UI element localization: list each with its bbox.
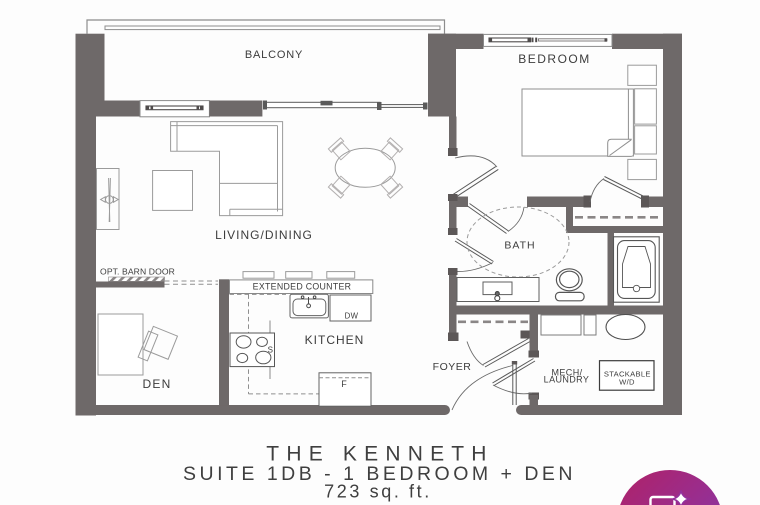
svg-text:DEN: DEN bbox=[143, 377, 172, 391]
svg-text:S: S bbox=[268, 345, 273, 354]
svg-text:BATH: BATH bbox=[504, 240, 535, 252]
svg-text:EXTENDED COUNTER: EXTENDED COUNTER bbox=[253, 281, 352, 291]
svg-text:DW: DW bbox=[345, 312, 359, 321]
svg-text:KITCHEN: KITCHEN bbox=[305, 333, 365, 347]
svg-text:BALCONY: BALCONY bbox=[245, 49, 303, 61]
svg-text:LIVING/DINING: LIVING/DINING bbox=[215, 228, 313, 242]
svg-text:LAUNDRY: LAUNDRY bbox=[544, 375, 590, 385]
svg-text:OPT. BARN DOOR: OPT. BARN DOOR bbox=[100, 266, 175, 276]
svg-text:W/D: W/D bbox=[619, 378, 635, 387]
svg-text:FOYER: FOYER bbox=[433, 361, 472, 373]
svg-text:723 sq. ft.: 723 sq. ft. bbox=[324, 482, 432, 502]
svg-text:F: F bbox=[341, 379, 347, 389]
svg-text:BEDROOM: BEDROOM bbox=[518, 52, 591, 66]
